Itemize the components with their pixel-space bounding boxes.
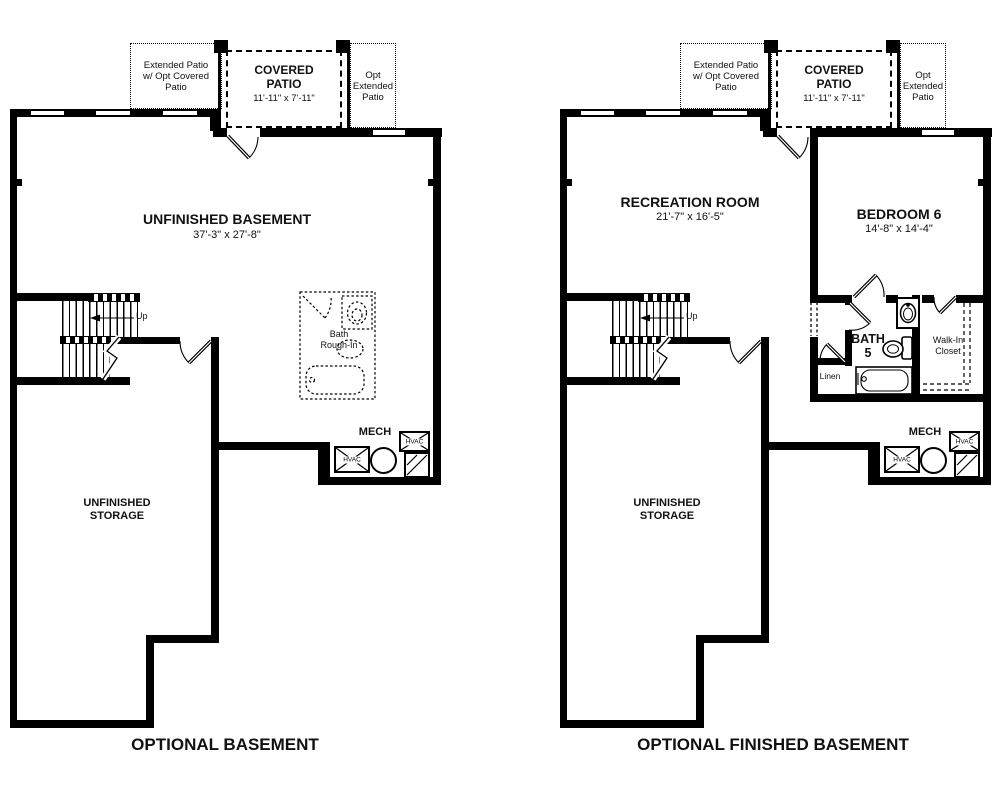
window (96, 109, 130, 117)
window (713, 109, 747, 117)
hvac-unit-icon: HVAC (399, 431, 430, 452)
wall (118, 337, 180, 344)
wall (17, 179, 22, 186)
wall (956, 295, 991, 303)
wall (761, 337, 769, 643)
opt-extended-patio-label: OptExtendedPatio (898, 70, 948, 103)
wall (922, 295, 934, 303)
wall (567, 293, 638, 301)
extended-patio-label: Extended Patiow/ Opt CoveredPatio (682, 60, 770, 93)
window (646, 109, 680, 117)
storage-door (180, 341, 211, 363)
stair-treads (612, 301, 688, 337)
hvac-label: HVAC (955, 438, 975, 445)
floor-plan-canvas: Extended Patiow/ Opt CoveredPatio COVERE… (0, 0, 1000, 800)
window (581, 109, 614, 117)
window (163, 109, 197, 117)
wall (769, 442, 876, 450)
wall (983, 128, 991, 485)
stair-rail (610, 336, 668, 344)
storage-label: UNFINISHEDSTORAGE (607, 497, 727, 523)
wall (810, 337, 818, 402)
bedroom-dims: 14'-8" x 14'-4" (818, 223, 980, 235)
duct-icon (954, 452, 980, 478)
hall-door (730, 341, 761, 363)
wall (978, 179, 983, 186)
wall (868, 477, 991, 485)
sink-counter (896, 297, 920, 329)
hvac-label: HVAC (405, 438, 425, 445)
stair-rail (88, 293, 140, 302)
patio-post (336, 40, 350, 53)
wall (10, 377, 130, 385)
hvac-unit-icon: HVAC (884, 446, 920, 473)
room-dims: 21'-7" x 16'-5" (560, 211, 820, 223)
up-label: Up (136, 311, 160, 321)
bathtub-roughin-icon (306, 366, 364, 394)
extended-patio-label: Extended Patiow/ Opt CoveredPatio (132, 60, 220, 93)
bath-door (849, 303, 870, 330)
patio-post (214, 40, 228, 53)
wall (696, 635, 769, 643)
cased-opening (811, 302, 817, 336)
bathtub-icon (856, 367, 912, 394)
wall (428, 179, 433, 186)
wall (219, 442, 326, 450)
duct-icon (404, 452, 430, 478)
window (922, 128, 954, 137)
wall (17, 293, 88, 301)
wall (213, 128, 227, 137)
room-title: RECREATION ROOM (560, 194, 820, 210)
stair-treads (612, 344, 660, 377)
wall (433, 128, 441, 485)
bedroom-title: BEDROOM 6 (818, 206, 980, 222)
wall (567, 179, 572, 186)
patio-door (228, 136, 258, 158)
wall (10, 109, 17, 728)
patio-post (764, 40, 778, 53)
wall (260, 128, 373, 137)
bath-label: BATH5 (848, 333, 888, 360)
window (373, 128, 405, 137)
wall (146, 635, 154, 728)
window (31, 109, 64, 117)
opt-extended-patio-label: OptExtendedPatio (348, 70, 398, 103)
hvac-unit-icon: HVAC (334, 446, 370, 473)
toilet-roughin-icon (348, 302, 367, 324)
wall (211, 337, 219, 643)
wall (668, 337, 730, 344)
wall (845, 297, 852, 305)
plan-caption-left: OPTIONAL BASEMENT (60, 735, 390, 755)
wall (318, 477, 441, 485)
closet-door (934, 297, 956, 313)
patio-post (886, 40, 900, 53)
wall (560, 377, 680, 385)
wall (696, 635, 704, 728)
linen-label: Linen (812, 371, 848, 381)
hvac-label: HVAC (342, 456, 362, 463)
stair-treads (62, 344, 110, 377)
room-title: UNFINISHED BASEMENT (100, 211, 354, 227)
hvac-label: HVAC (892, 456, 912, 463)
bath-rough-in-label: BathRough-In (305, 329, 373, 350)
wall (810, 128, 922, 137)
wall (146, 635, 219, 643)
wall (810, 394, 991, 402)
storage-label: UNFINISHEDSTORAGE (57, 497, 177, 523)
walk-in-closet-label: Walk-InCloset (918, 335, 978, 356)
wall (763, 128, 777, 137)
plan-caption-right: OPTIONAL FINISHED BASEMENT (555, 735, 991, 755)
hvac-unit-icon: HVAC (949, 431, 980, 452)
covered-patio-dims: 11'-11" x 7'-11" (226, 93, 342, 104)
stair-treads (62, 301, 138, 337)
wall (10, 720, 154, 728)
stair-rail (638, 293, 690, 302)
mech-label: MECH (347, 426, 403, 438)
water-heater-icon (920, 447, 947, 474)
stair-rail (60, 336, 118, 344)
water-heater-icon (370, 447, 397, 474)
patio-door (778, 136, 808, 158)
room-dims: 37'-3" x 27'-8" (100, 229, 354, 241)
covered-patio-dims: 11'-11" x 7'-11" (776, 93, 892, 104)
covered-patio-label: COVEREDPATIO (226, 64, 342, 91)
wall (560, 720, 704, 728)
mech-label: MECH (897, 426, 953, 438)
up-label: Up (686, 311, 710, 321)
bedroom-door (854, 275, 884, 297)
covered-patio-label: COVEREDPATIO (776, 64, 892, 91)
